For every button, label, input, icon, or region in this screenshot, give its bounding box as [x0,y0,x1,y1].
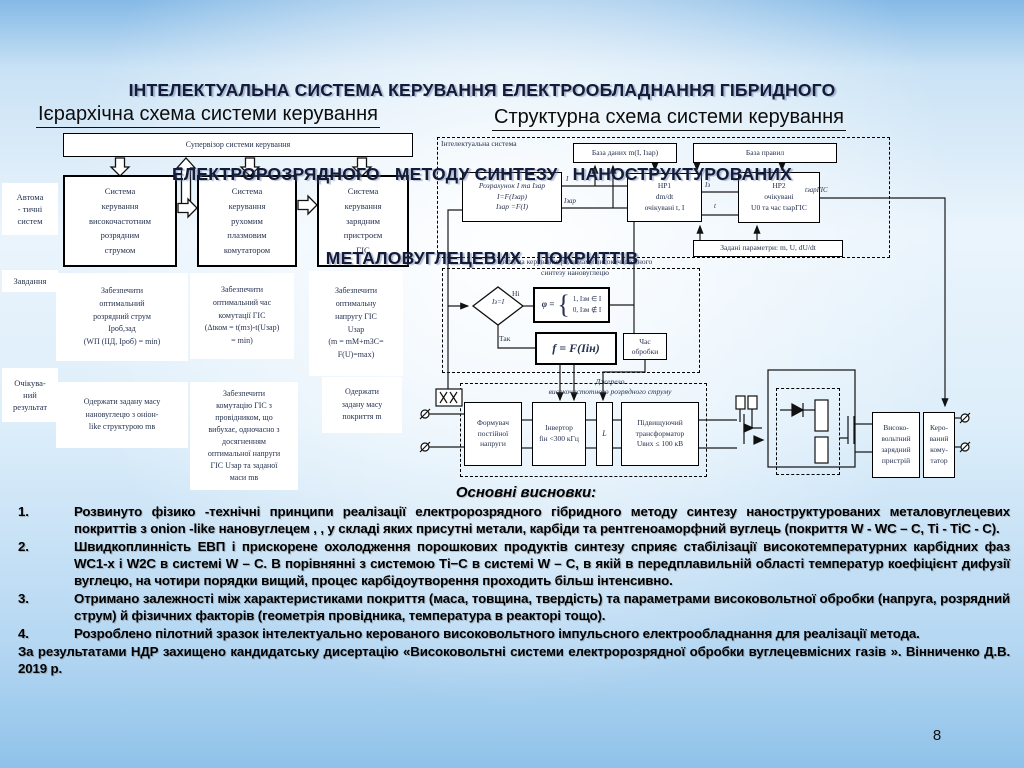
dc-former-box: Формувач постійної напруги [464,402,522,466]
f-formula-box: f = F(Iін) [535,332,617,365]
item-text: Розвинуто фізико -технічні принципи реал… [74,503,1010,537]
inverter-box: Інвертор fін <300 кГц [532,402,586,466]
processing-time-box: Час обробки [623,333,667,360]
title-line-2: ЕЛЕКТРОРОЗРЯДНОГО МЕТОДУ СИНТЕЗУ НАНОСТР… [42,160,922,188]
result-box-3: Одержати задану масу покриття m [322,377,402,433]
circuit-frame [768,370,855,467]
diode-icon [780,403,815,417]
conclusion-item: 3. Отримано залежності між характеристик… [18,590,1010,624]
item-number: 2. [18,538,58,589]
source-label: Джерело високочастотного розрядного стру… [525,377,695,397]
junction-box-icon [436,389,462,406]
item-number: 4. [18,625,58,642]
capacitor-icon [840,416,854,444]
hv-charger-box: Високо- вольтний зарядний пристрій [872,412,920,478]
page-number: 8 [922,727,952,744]
item-number: 1. [18,503,58,537]
left-diagram-heading: Ієрархічна схема системи керування [36,103,380,128]
pulse-circuit [736,370,855,467]
dissertation-note: За результатами НДР захищено кандидатськ… [18,643,1010,677]
stack-element-icon [815,400,828,431]
title-line-1: ІНТЕЛЕКТУАЛЬНА СИСТЕМА КЕРУВАННЯ ЕЛЕКТРО… [42,76,922,104]
conclusion-item: 1. Розвинуто фізико -технічні принципи р… [18,503,1010,537]
transformer-icon [748,396,757,409]
result-box-1: Одержати задану масу нановуглецю з оніон… [56,382,188,448]
item-number: 3. [18,590,58,624]
conclusions-list: 1. Розвинуто фізико -технічні принципи р… [18,503,1010,677]
inductor-box: L [596,402,613,466]
commutator-box: Керо- ваний кому- татор [923,412,955,478]
transistor-icon [744,414,763,444]
transformer-icon [736,396,745,409]
yes-label: Так [499,334,510,343]
conclusion-item: 4. Розроблено пілотний зразок інтелектуа… [18,625,1010,642]
right-diagram-heading: Структурна схема системи керування [492,106,846,131]
output-terminal-icons [960,413,970,452]
title-line-3: МЕТАЛОВУГЛЕЦЕВИХ ПОКРИТТІВ [42,244,922,272]
transformer-box: Підвищуючий трансформатор Uвих ≤ 100 кВ [621,402,699,466]
row-label-results: Очікува- ний результат [2,368,58,422]
item-text: Швидкоплинність ЕВП і прискорене охолодж… [74,538,1010,589]
conclusion-item: 2. Швидкоплинність ЕВП і прискорене охол… [18,538,1010,589]
result-box-2: Забезпечити комутацію ГІС з провідником,… [190,382,298,490]
item-text: Розроблено пілотний зразок інтелектуальн… [74,625,1010,642]
conclusions-heading: Основні висновки: [436,484,616,501]
input-terminal-icons [420,389,462,452]
slide: ІНТЕЛЕКТУАЛЬНА СИСТЕМА КЕРУВАННЯ ЕЛЕКТРО… [0,0,1024,768]
stack-element-icon [815,437,828,463]
item-text: Отримано залежності між характеристиками… [74,590,1010,624]
slide-title: ІНТЕЛЕКТУАЛЬНА СИСТЕМА КЕРУВАННЯ ЕЛЕКТРО… [42,20,922,328]
